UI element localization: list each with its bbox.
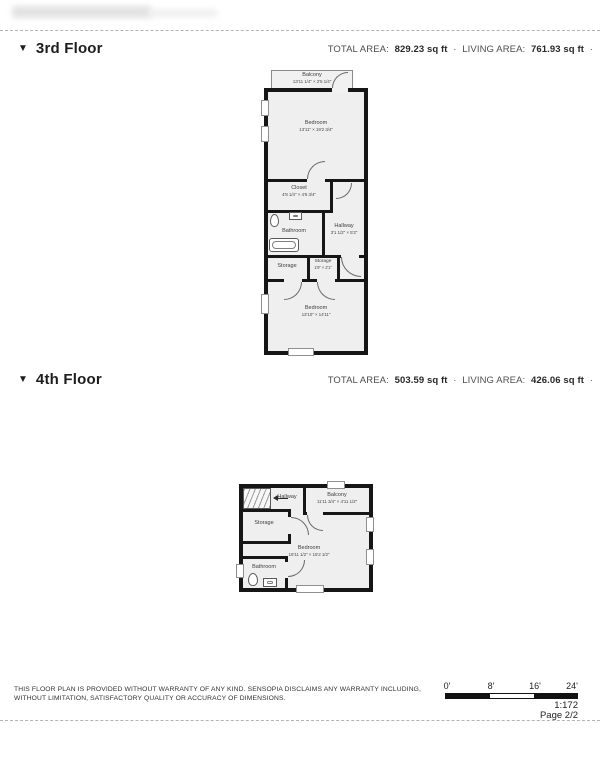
collapse-triangle-icon: ▼ [18, 43, 28, 54]
wall [243, 541, 291, 544]
toilet-icon [248, 573, 258, 586]
blurred-logo-fade [148, 9, 218, 17]
wall [303, 488, 306, 515]
living-area-value: 761.93 sq ft [531, 44, 584, 55]
room-label-hallway: Hallway [277, 494, 296, 501]
scale-tick-0: 0' [444, 681, 451, 691]
wall [330, 179, 333, 213]
room-label-bedroom-lower: Bedroom 13'10" × 14'11" [302, 305, 331, 318]
toilet-icon [270, 214, 279, 227]
wall [335, 279, 364, 282]
scale-tick-24: 24' [566, 681, 578, 691]
scale-segment-black [446, 694, 490, 698]
room-label-bathroom: Bathroom [252, 564, 276, 571]
blurred-logo [12, 6, 152, 18]
window [327, 481, 345, 489]
bathtub-icon [269, 238, 299, 252]
window [261, 126, 269, 142]
wall [243, 509, 288, 512]
wall [268, 179, 307, 182]
wall [307, 255, 310, 282]
floor-header-3rd[interactable]: ▼ 3rd Floor [18, 40, 103, 57]
window [288, 348, 314, 356]
top-divider [0, 30, 600, 31]
room-label-closet: Closet 4'8 1/4" × 4'6 3/4" [282, 185, 316, 198]
wall [268, 279, 284, 282]
separator-dot: · [453, 375, 456, 386]
sink-icon [263, 578, 277, 587]
floor-title: 3rd Floor [36, 40, 103, 57]
collapse-triangle-icon: ▼ [18, 374, 28, 385]
window [261, 100, 269, 116]
room-label-storage-left: Storage [277, 263, 296, 270]
room-label-balcony: Balcony 11'11 3/4" × 4'11 1/2" [317, 492, 357, 505]
room-label-balcony: Balcony 13'11 1/4" × 2'5 1/4" [293, 72, 331, 85]
total-area-value: 829.23 sq ft [395, 44, 448, 55]
room-label-storage-right: Storage 1'9" × 2'1" [314, 259, 332, 271]
trailing-dot: · [590, 44, 593, 55]
room-label-bedroom: Bedroom 16'11 1/2" × 15'2 1/2" [289, 545, 330, 558]
wall [302, 279, 317, 282]
floor-header-4th[interactable]: ▼ 4th Floor [18, 371, 102, 388]
separator-dot: · [453, 44, 456, 55]
room-label-bathroom: Bathroom [282, 228, 306, 235]
floor-stats-4th: TOTAL AREA: 503.59 sq ft · LIVING AREA: … [328, 375, 596, 386]
window [366, 549, 374, 565]
sink-icon [289, 212, 302, 220]
wall [322, 210, 325, 258]
room-label-storage: Storage [254, 520, 273, 527]
wall [337, 255, 340, 282]
wall [243, 556, 288, 559]
window [261, 294, 269, 314]
trailing-dot: · [590, 375, 593, 386]
scale-tick-16: 16' [529, 681, 541, 691]
room-label-bedroom-upper: Bedroom 13'11" × 19'2 3/4" [299, 120, 333, 133]
disclaimer-text: THIS FLOOR PLAN IS PROVIDED WITHOUT WARR… [14, 686, 434, 703]
wall [268, 255, 341, 258]
wall [285, 578, 288, 588]
window [296, 585, 324, 593]
scale-segment-black [534, 694, 577, 698]
living-area-value: 426.06 sq ft [531, 375, 584, 386]
scale-tick-8: 8' [488, 681, 495, 691]
bottom-divider [0, 720, 600, 721]
floor-title: 4th Floor [36, 371, 102, 388]
scale-bar [445, 693, 578, 699]
living-area-label: LIVING AREA: [462, 44, 525, 55]
wall [288, 509, 291, 517]
scale-segment-white [490, 694, 534, 698]
total-area-value: 503.59 sq ft [395, 375, 448, 386]
room-label-hallway: Hallway 3'1 1/2" × 5'2" [331, 223, 358, 236]
living-area-label: LIVING AREA: [462, 375, 525, 386]
floor-stats-3rd: TOTAL AREA: 829.23 sq ft · LIVING AREA: … [328, 44, 596, 55]
window [366, 517, 374, 532]
total-area-label: TOTAL AREA: [328, 44, 389, 55]
total-area-label: TOTAL AREA: [328, 375, 389, 386]
stairs-icon [243, 488, 271, 509]
floorplan-page: ▼ 3rd Floor TOTAL AREA: 829.23 sq ft · L… [0, 0, 600, 778]
window [236, 564, 244, 578]
